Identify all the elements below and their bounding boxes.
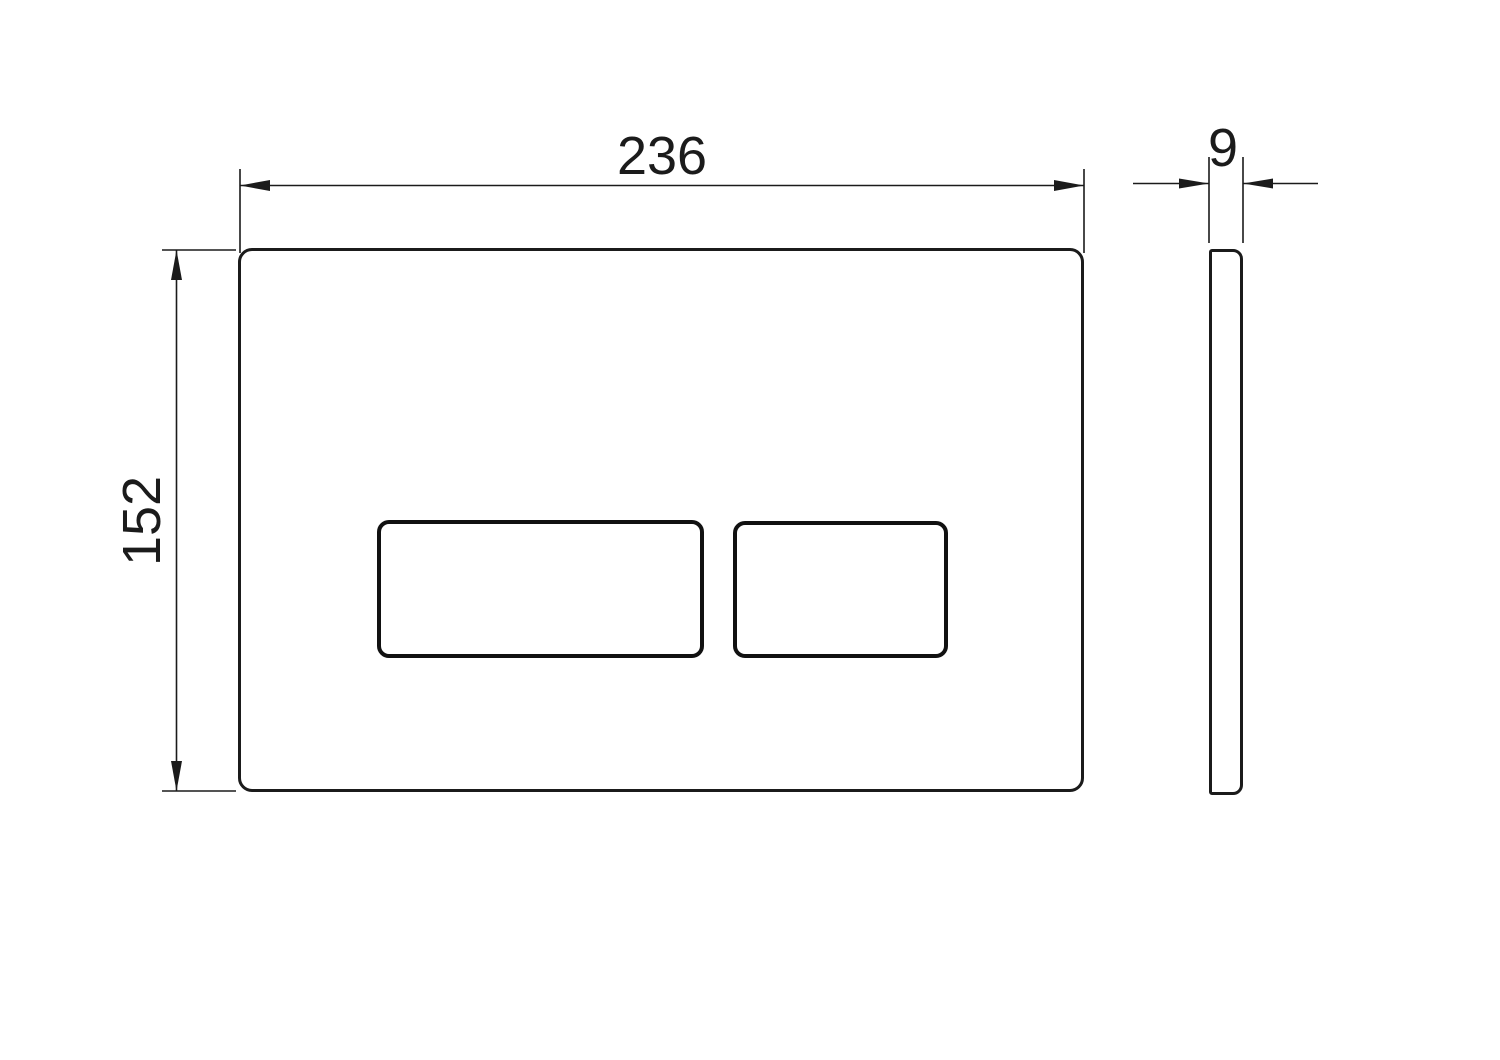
small-flush-button: [733, 521, 948, 658]
large-flush-button: [377, 520, 704, 658]
height-dimension-label: 152: [115, 476, 169, 566]
arrow-down-icon: [171, 761, 182, 791]
arrow-right-icon: [1054, 180, 1084, 191]
technical-drawing-canvas: 236 152 9: [0, 0, 1500, 1060]
width-dimension-label: 236: [617, 129, 707, 183]
flush-plate-side-view: [1209, 249, 1243, 795]
height-dimension: [162, 250, 236, 791]
arrow-right-icon: [1179, 179, 1209, 189]
arrow-up-icon: [171, 250, 182, 280]
arrow-left-icon: [240, 180, 270, 191]
arrow-left-icon: [1243, 179, 1273, 189]
thickness-dimension-label: 9: [1208, 121, 1238, 175]
